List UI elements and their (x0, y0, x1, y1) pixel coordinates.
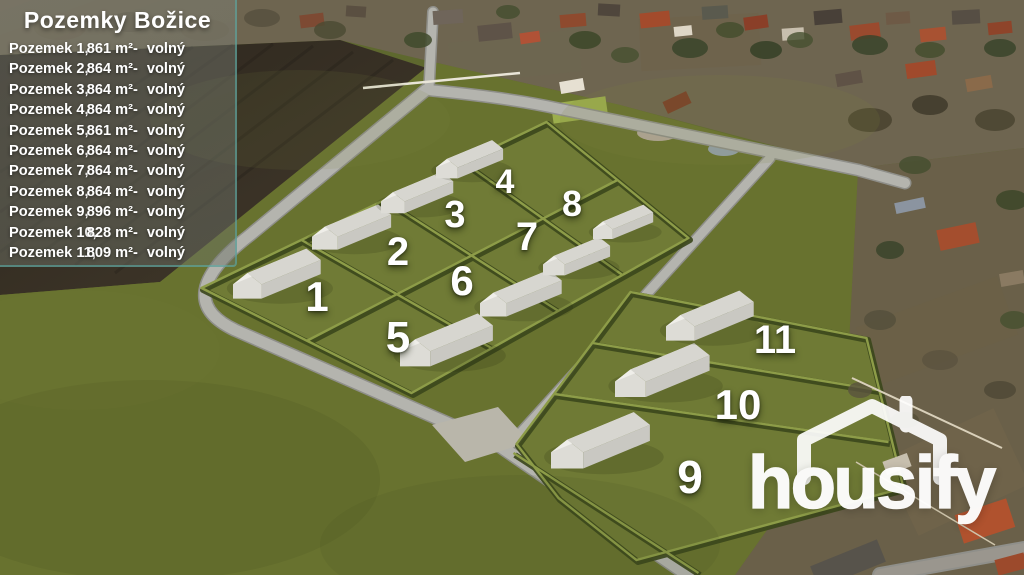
status-value: volný (147, 61, 185, 77)
plot-area: 861 m² (87, 123, 133, 139)
tree-blob (404, 32, 432, 48)
village-house (639, 10, 670, 28)
legend-row-10: Pozemek 10,828 m²-volný (0, 225, 235, 245)
plot-number-9: 9 (677, 454, 703, 500)
village-house (987, 21, 1012, 35)
plot-label: Pozemek 4, (9, 102, 82, 118)
village-house (346, 5, 367, 17)
tree-blob (787, 32, 813, 48)
village-house (702, 5, 729, 20)
plot-number-6: 6 (450, 260, 473, 302)
legend-row-8: Pozemek 8,864 m²-volný (0, 184, 235, 204)
tree-blob (876, 241, 904, 259)
plot-area: 864 m² (87, 82, 133, 98)
legend-row-9: Pozemek 9,896 m²-volný (0, 204, 235, 224)
separator-dash: - (133, 41, 138, 57)
logo-wordmark: housify (748, 440, 994, 525)
village-house (813, 9, 842, 25)
plot-label: Pozemek 11, (9, 245, 82, 261)
tree-blob (244, 9, 280, 27)
plot-label: Pozemek 6, (9, 143, 82, 159)
tree-blob (899, 156, 931, 174)
plot-number-3: 3 (444, 196, 465, 234)
legend-row-5: Pozemek 5,861 m²-volný (0, 123, 235, 143)
separator-dash: - (133, 123, 138, 139)
plot-area: 864 m² (87, 163, 133, 179)
legend-row-7: Pozemek 7,864 m²-volný (0, 163, 235, 183)
tree-blob (750, 41, 782, 59)
separator-dash: - (133, 184, 138, 200)
legend-row-1: Pozemek 1,861 m²-volný (0, 41, 235, 61)
status-value: volný (147, 123, 185, 139)
tree-blob (922, 350, 958, 370)
village-house (919, 27, 946, 43)
status-value: volný (147, 102, 185, 118)
status-value: volný (147, 82, 185, 98)
status-value: volný (147, 225, 185, 241)
tree-blob (915, 42, 945, 58)
plot-area: 896 m² (87, 204, 133, 220)
legend-row-11: Pozemek 11,809 m²-volný (0, 245, 235, 265)
plot-label: Pozemek 9, (9, 204, 82, 220)
plot-number-5: 5 (386, 316, 410, 360)
plot-label: Pozemek 7, (9, 163, 82, 179)
plot-area: 864 m² (87, 184, 133, 200)
plot-area: 828 m² (87, 225, 133, 241)
tree-blob (496, 5, 520, 19)
plot-area: 864 m² (87, 61, 133, 77)
legend-row-3: Pozemek 3,864 m²-volný (0, 82, 235, 102)
plot-label: Pozemek 2, (9, 61, 82, 77)
tree-blob (912, 95, 948, 115)
aerial-site-plan: 1 2 3 4 5 6 7 8 9 10 11 Pozemky Božice P… (0, 0, 1024, 575)
village-house (674, 25, 693, 37)
separator-dash: - (133, 204, 138, 220)
separator-dash: - (133, 102, 138, 118)
plot-area: 861 m² (87, 41, 133, 57)
plot-label: Pozemek 8, (9, 184, 82, 200)
plot-area: 864 m² (87, 143, 133, 159)
housify-logo: housify (746, 396, 1018, 554)
village-house (598, 3, 621, 16)
tree-blob (569, 31, 601, 49)
status-value: volný (147, 143, 185, 159)
legend-row-2: Pozemek 2,864 m²-volný (0, 61, 235, 81)
status-value: volný (147, 41, 185, 57)
tree-blob (864, 310, 896, 330)
status-value: volný (147, 184, 185, 200)
village-house (559, 13, 586, 28)
plot-number-7: 7 (516, 217, 538, 257)
tree-blob (975, 109, 1015, 131)
plot-label: Pozemek 3, (9, 82, 82, 98)
legend-panel: Pozemky Božice Pozemek 1,861 m²-volný Po… (0, 0, 237, 267)
tree-blob (611, 47, 639, 63)
plot-number-4: 4 (496, 165, 515, 199)
status-value: volný (147, 245, 185, 261)
separator-dash: - (133, 143, 138, 159)
plot-area: 809 m² (87, 245, 133, 261)
plot-label: Pozemek 10, (9, 225, 82, 241)
legend-row-4: Pozemek 4,864 m²-volný (0, 102, 235, 122)
village-house (886, 11, 911, 25)
plot-number-1: 1 (305, 276, 328, 318)
separator-dash: - (133, 245, 138, 261)
plot-label: Pozemek 1, (9, 41, 82, 57)
tree-blob (716, 22, 744, 38)
plot-number-11: 11 (754, 320, 796, 360)
status-value: volný (147, 163, 185, 179)
tree-blob (852, 35, 888, 55)
separator-dash: - (133, 82, 138, 98)
village-house (952, 9, 981, 24)
tree-blob (984, 39, 1016, 57)
plot-number-2: 2 (387, 232, 409, 272)
village-house (433, 9, 464, 25)
plot-label: Pozemek 5, (9, 123, 82, 139)
tree-blob (672, 38, 708, 58)
plot-area: 864 m² (87, 102, 133, 118)
plot-number-8: 8 (562, 186, 582, 222)
separator-dash: - (133, 61, 138, 77)
page-title: Pozemky Božice (0, 0, 235, 41)
status-value: volný (147, 204, 185, 220)
separator-dash: - (133, 163, 138, 179)
tree-blob (314, 21, 346, 39)
separator-dash: - (133, 225, 138, 241)
legend-row-6: Pozemek 6,864 m²-volný (0, 143, 235, 163)
